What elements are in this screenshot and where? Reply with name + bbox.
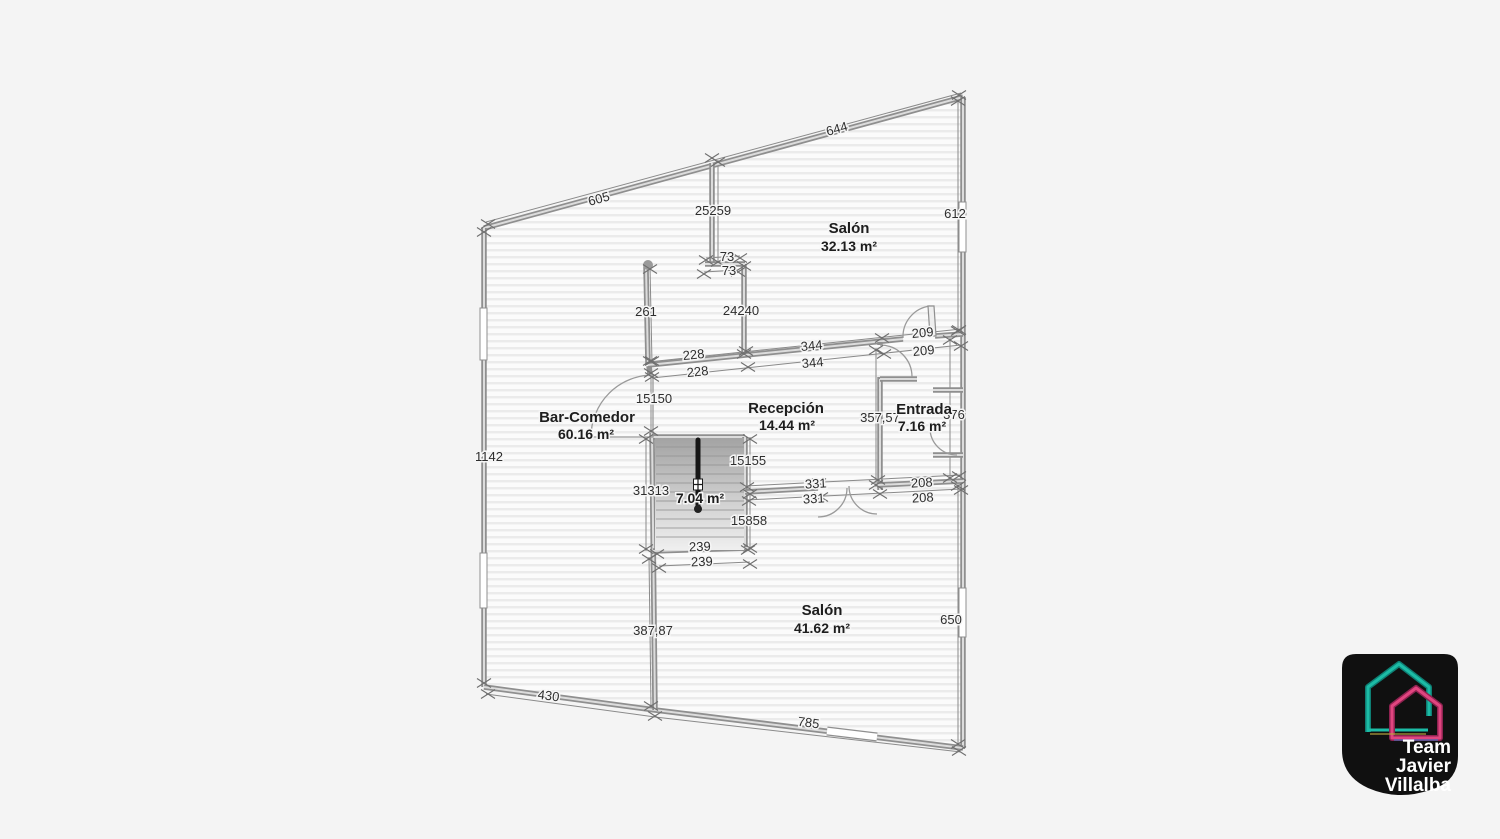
dim-label: 24240 (723, 303, 759, 318)
room-area-stairs: 7.04 m² (676, 490, 725, 506)
dim-label: 239 (689, 539, 711, 555)
dim-label: 430 (537, 687, 560, 705)
dim-label: 209 (911, 324, 934, 341)
dim-label: 208 (912, 489, 934, 505)
room-area-entrada: 7.16 m² (898, 418, 947, 434)
dim-label: 785 (797, 714, 820, 732)
room-name-entrada: Entrada (896, 401, 953, 418)
dim-label: 208 (911, 474, 933, 490)
logo-text-line1: Team (1403, 737, 1451, 758)
window-left-upper (480, 308, 487, 360)
dim-label: 357,57 (860, 410, 900, 425)
floor-plan-canvas: 605 644 612 25259 73 73 24240 261 228 22… (0, 0, 1500, 839)
window-left-lower (480, 553, 487, 608)
dim-label: 612 (944, 206, 966, 221)
dim-label: 1142 (475, 449, 503, 464)
dim-label: 331 (803, 490, 825, 506)
room-area-salon-top: 32.13 m² (821, 238, 877, 254)
dim-label: 15150 (636, 391, 672, 406)
dim-label: 15858 (731, 513, 767, 528)
dim-label: 25259 (695, 203, 731, 218)
dim-label: 344 (801, 354, 824, 371)
logo-text-line3: Villalba (1385, 775, 1452, 796)
dim-label: 73 (722, 263, 736, 278)
dim-label: 209 (912, 342, 935, 359)
dim-label: 15155 (730, 453, 766, 468)
room-area-recepcion: 14.44 m² (759, 417, 815, 433)
room-name-recepcion: Recepción (748, 400, 824, 417)
brand-logo: Team Javier Villalba (1342, 654, 1458, 796)
room-name-salon-top: Salón (829, 220, 870, 237)
dim-label: 387,87 (633, 623, 673, 638)
room-name-salon-bottom: Salón (802, 602, 843, 619)
dim-label: 228 (686, 363, 709, 380)
dim-label: 239 (691, 554, 713, 570)
dim-label: 344 (800, 337, 823, 354)
dim-label: 650 (940, 612, 962, 627)
dim-label: 73 (720, 249, 734, 264)
dim-label: 261 (635, 304, 657, 319)
dim-label: 228 (682, 346, 705, 363)
dim-label: 331 (805, 475, 827, 491)
room-area-bar-comedor: 60.16 m² (558, 426, 614, 442)
room-area-salon-bottom: 41.62 m² (794, 620, 850, 636)
logo-text-line2: Javier (1396, 756, 1452, 777)
dim-label: 31313 (633, 483, 669, 498)
floor-plan-page: 605 644 612 25259 73 73 24240 261 228 22… (0, 0, 1500, 839)
room-name-bar-comedor: Bar-Comedor (539, 409, 635, 426)
